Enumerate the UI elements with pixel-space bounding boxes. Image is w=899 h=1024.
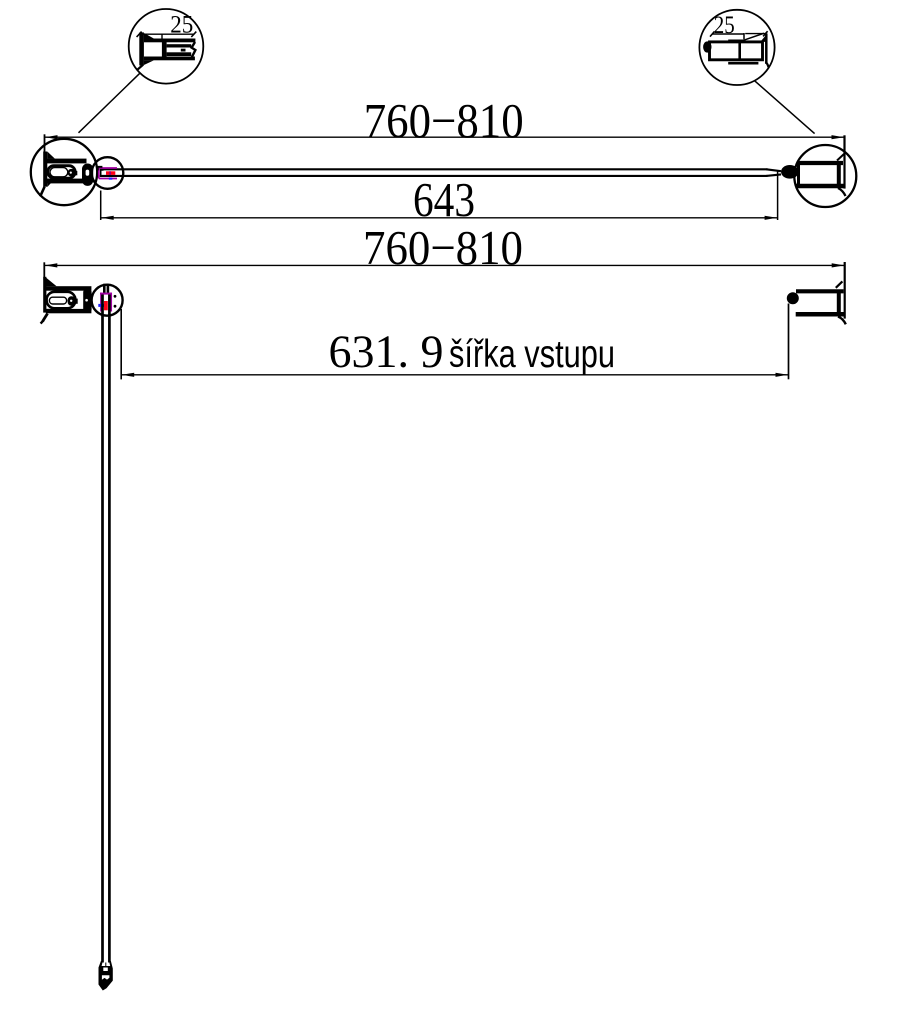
svg-text:760−810: 760−810 (364, 93, 524, 148)
svg-text:631. 9: 631. 9 (329, 327, 444, 378)
svg-text:25: 25 (714, 12, 735, 39)
svg-text:643: 643 (413, 172, 475, 227)
svg-text:760−810: 760−810 (363, 220, 523, 275)
svg-text:šířka vstupu: šířka vstupu (449, 333, 615, 376)
